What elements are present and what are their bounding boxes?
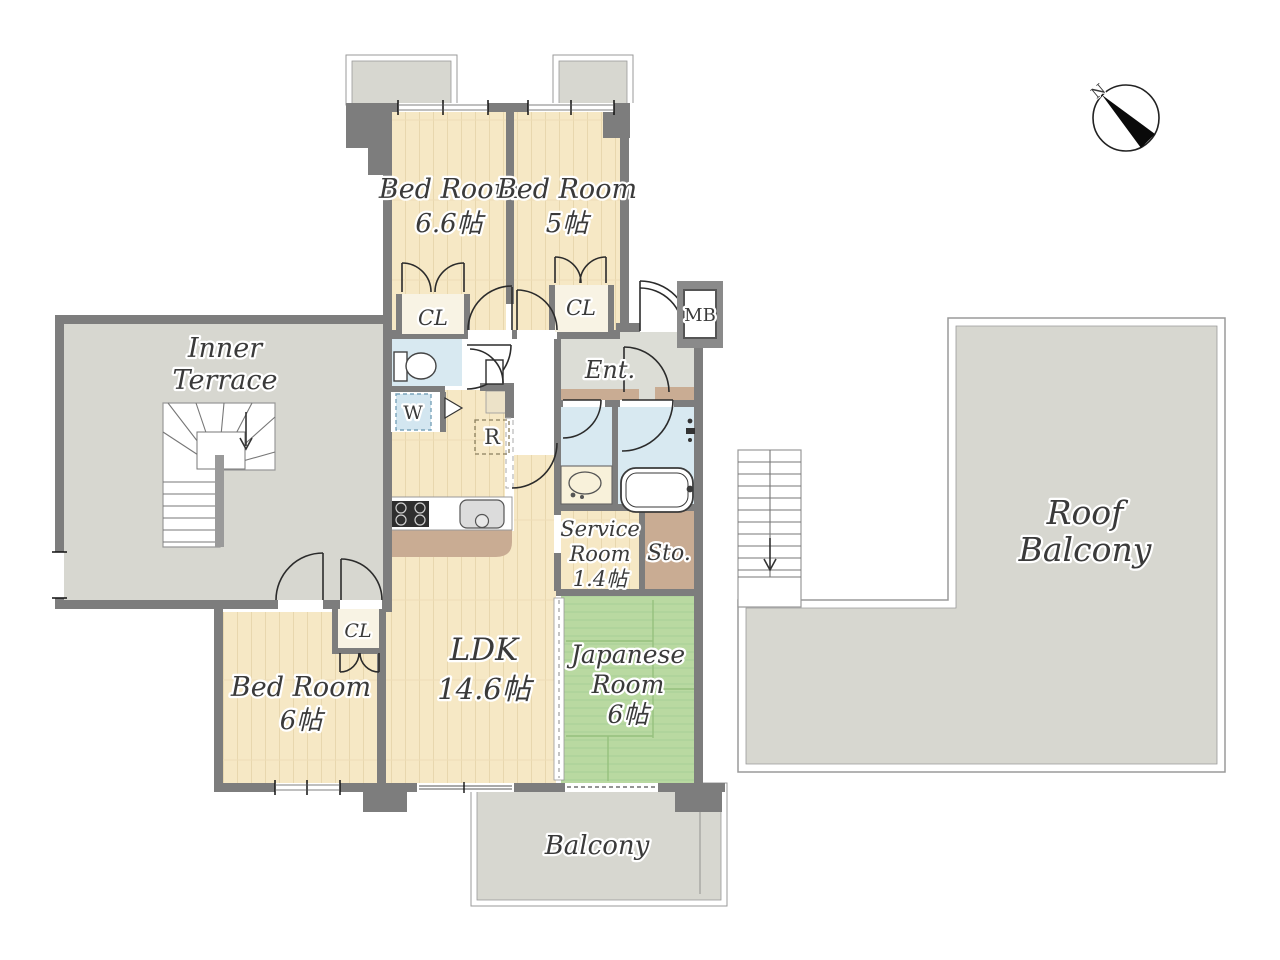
service-room-label-2: Room xyxy=(568,542,630,566)
upper-balcony-left xyxy=(346,55,457,105)
refrigerator-label: R xyxy=(484,425,501,449)
floor-plan: Roof Balcony Balcony Inner Terrace xyxy=(0,0,1280,960)
japanese-room-size: 6帖 xyxy=(608,700,652,729)
washer-label: W xyxy=(403,402,423,424)
compass: N xyxy=(1088,80,1159,151)
bedroom1-size: 6.6帖 xyxy=(415,209,486,239)
inner-terrace-label-1: Inner xyxy=(187,333,264,364)
service-room-label-1: Service xyxy=(560,517,640,541)
closet3-label: CL xyxy=(344,620,371,642)
roof-balcony-label-1: Roof xyxy=(1046,493,1130,532)
washbasin xyxy=(561,466,612,504)
bedroom2-name: Bed Room xyxy=(496,174,637,205)
meter-box: MB xyxy=(677,281,723,348)
bedroom2-size: 5帖 xyxy=(546,209,593,239)
inner-terrace: Inner Terrace xyxy=(64,324,383,600)
inner-terrace-label-2: Terrace xyxy=(173,365,278,396)
upper-balcony-right xyxy=(553,55,633,105)
service-room-size: 1.4帖 xyxy=(573,567,630,591)
ldk-name: LDK xyxy=(449,632,520,668)
entrance-label: Ent. xyxy=(584,356,635,384)
bedroom3-size: 6帖 xyxy=(280,706,327,736)
floor-plan-canvas: Roof Balcony Balcony Inner Terrace xyxy=(0,0,1280,960)
japanese-room-name-2: Room xyxy=(591,670,665,699)
storage-label: Sto. xyxy=(647,541,691,566)
japanese-room-name-1: Japanese xyxy=(566,640,685,669)
closet2-label: CL xyxy=(566,296,596,320)
roof-balcony-label-2: Balcony xyxy=(1018,530,1152,569)
toilet xyxy=(394,352,436,381)
kitchen-counter xyxy=(387,497,512,530)
ldk-size: 14.6帖 xyxy=(437,672,535,706)
window-ldk-slider xyxy=(417,782,514,793)
sliding-door xyxy=(554,598,564,780)
roof-balcony: Roof Balcony xyxy=(738,318,1225,772)
exterior-stairs xyxy=(738,450,801,607)
closet1-label: CL xyxy=(418,306,448,330)
balcony-label: Balcony xyxy=(544,831,650,861)
entrance-step xyxy=(561,389,639,400)
ldk-floor-upper xyxy=(514,455,554,531)
entrance-step-2 xyxy=(655,387,694,400)
meter-box-label: MB xyxy=(684,305,716,326)
bedroom3-name: Bed Room xyxy=(230,672,371,703)
kitchen-accent xyxy=(391,530,512,557)
shower-mixer xyxy=(686,428,695,434)
window-japanese-slider xyxy=(565,783,658,792)
